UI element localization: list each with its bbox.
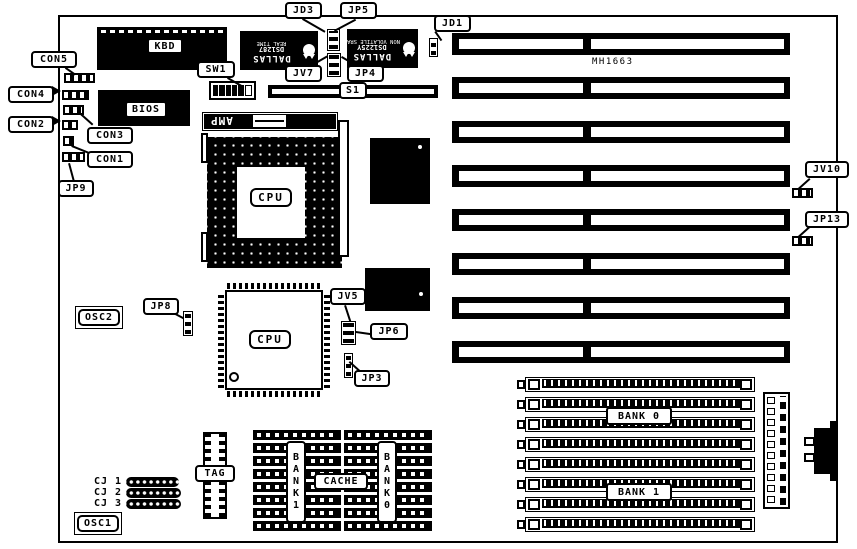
osc1-label: OSC1 [77,515,119,532]
power-connector [763,392,790,509]
cpu2-pins-left [218,292,224,388]
cache-bank1-label: BANK1 [286,441,306,523]
con4-header [62,90,89,100]
callout-jp3: JP3 [354,370,390,387]
dallas1-brand: DALLAS [252,52,291,61]
amp-brand-text: AMP [210,114,233,127]
kbd-chip-label: KBD [147,38,183,54]
dallas-sram-chip: DALLAS DS1225Y NON VOLATILE SRAM [347,29,418,68]
board-name-text: MH1663 [592,57,634,67]
callout-jp8: JP8 [143,298,179,315]
callout-con1: CON1 [87,151,133,168]
callout-jv7: JV7 [285,65,322,82]
socket-tab [201,232,208,262]
din-pin-tab [804,437,815,446]
cj3-label: CJ 3 [94,498,122,509]
jumper-jv5-jp6 [341,321,356,345]
asic-chip-2 [365,268,430,311]
cpu2-pin1-marker [229,372,239,382]
callout-con2: CON2 [8,116,54,133]
isa-slot-8 [452,341,790,363]
osc1-box: OSC1 [74,512,122,535]
callout-con3: CON3 [87,127,133,144]
con5-header [64,73,95,83]
isa-slot-5 [452,209,790,231]
cpu2-label: CPU [249,330,291,349]
isa-slot-3 [452,121,790,143]
cj2-label: CJ 2 [94,487,122,498]
cpu2-pins-right [324,292,330,388]
callout-jp5: JP5 [340,2,377,19]
dallas-logo-icon [303,45,315,57]
amp-window [253,115,286,127]
dallas2-brand: DALLAS [353,50,392,59]
cj1-label: CJ 1 [94,476,122,487]
con2-header [62,120,78,130]
cpu2-pins-top [227,283,321,289]
dallas-logo-icon [403,43,415,55]
kbd-chip-notch [101,30,223,33]
dallas2-desc: NON VOLATILE SRAM [347,37,400,43]
callout-cache: CACHE [314,473,368,490]
socket-tab [201,133,208,163]
amp-socket-bar: AMP [202,112,338,131]
jumper-jd1 [429,38,438,57]
socket-lever [338,120,349,257]
jp9-header [62,152,85,162]
jumper-jp8 [183,311,193,336]
callout-jp9: JP9 [58,180,94,197]
jumper-jp13 [792,236,813,246]
isa-slot-6 [452,253,790,275]
isa-slot-4 [452,165,790,187]
cj1-header [126,477,179,487]
cache-row [344,430,432,440]
simm-socket-4 [525,437,755,452]
callout-jv10: JV10 [805,161,849,178]
dallas2-part: DS1225Y [357,43,387,50]
callout-sw1: SW1 [197,61,235,78]
pin1-dot [419,292,423,296]
simm-socket-5 [525,457,755,472]
cpu2-pins-bottom [227,391,321,397]
din-pin-tab [804,453,815,462]
callout-jp4: JP4 [347,65,384,82]
dip-switch-sw1 [209,81,256,100]
isa-slot-2 [452,77,790,99]
callout-s1: S1 [339,82,367,99]
simm-bank0-label: BANK 0 [606,407,672,425]
jumper-jd3-jp5 [327,29,340,51]
simm-bank1-label: BANK 1 [606,483,672,501]
callout-tag: TAG [195,465,235,482]
osc2-box: OSC2 [75,306,123,329]
callout-con5: CON5 [31,51,77,68]
callout-jp13: JP13 [805,211,849,228]
cache-row [253,430,341,440]
cpu1-label: CPU [250,188,292,207]
callout-jv5: JV5 [330,288,366,305]
bios-chip-label: BIOS [125,101,167,118]
dallas1-desc: REAL TIME [257,39,287,45]
isa-slot-1 [452,33,790,55]
jumper-jv7-jp4 [327,53,341,77]
callout-jd3: JD3 [285,2,322,19]
isa-slot-7 [452,297,790,319]
cj2-header [126,488,181,498]
osc2-label: OSC2 [78,309,120,326]
cj3-header [126,499,181,509]
keyboard-din-connector-body [814,428,832,474]
cache-bank0-label: BANK0 [377,441,397,523]
simm-socket-8 [525,517,755,532]
dallas1-part: DS1287 [259,45,284,52]
callout-con4: CON4 [8,86,54,103]
asic-chip-1 [370,138,430,204]
simm-socket-1 [525,377,755,392]
callout-jp6: JP6 [370,323,408,340]
callout-jd1: JD1 [434,15,471,32]
pin1-dot [418,145,422,149]
jumper-jv10 [792,188,813,198]
